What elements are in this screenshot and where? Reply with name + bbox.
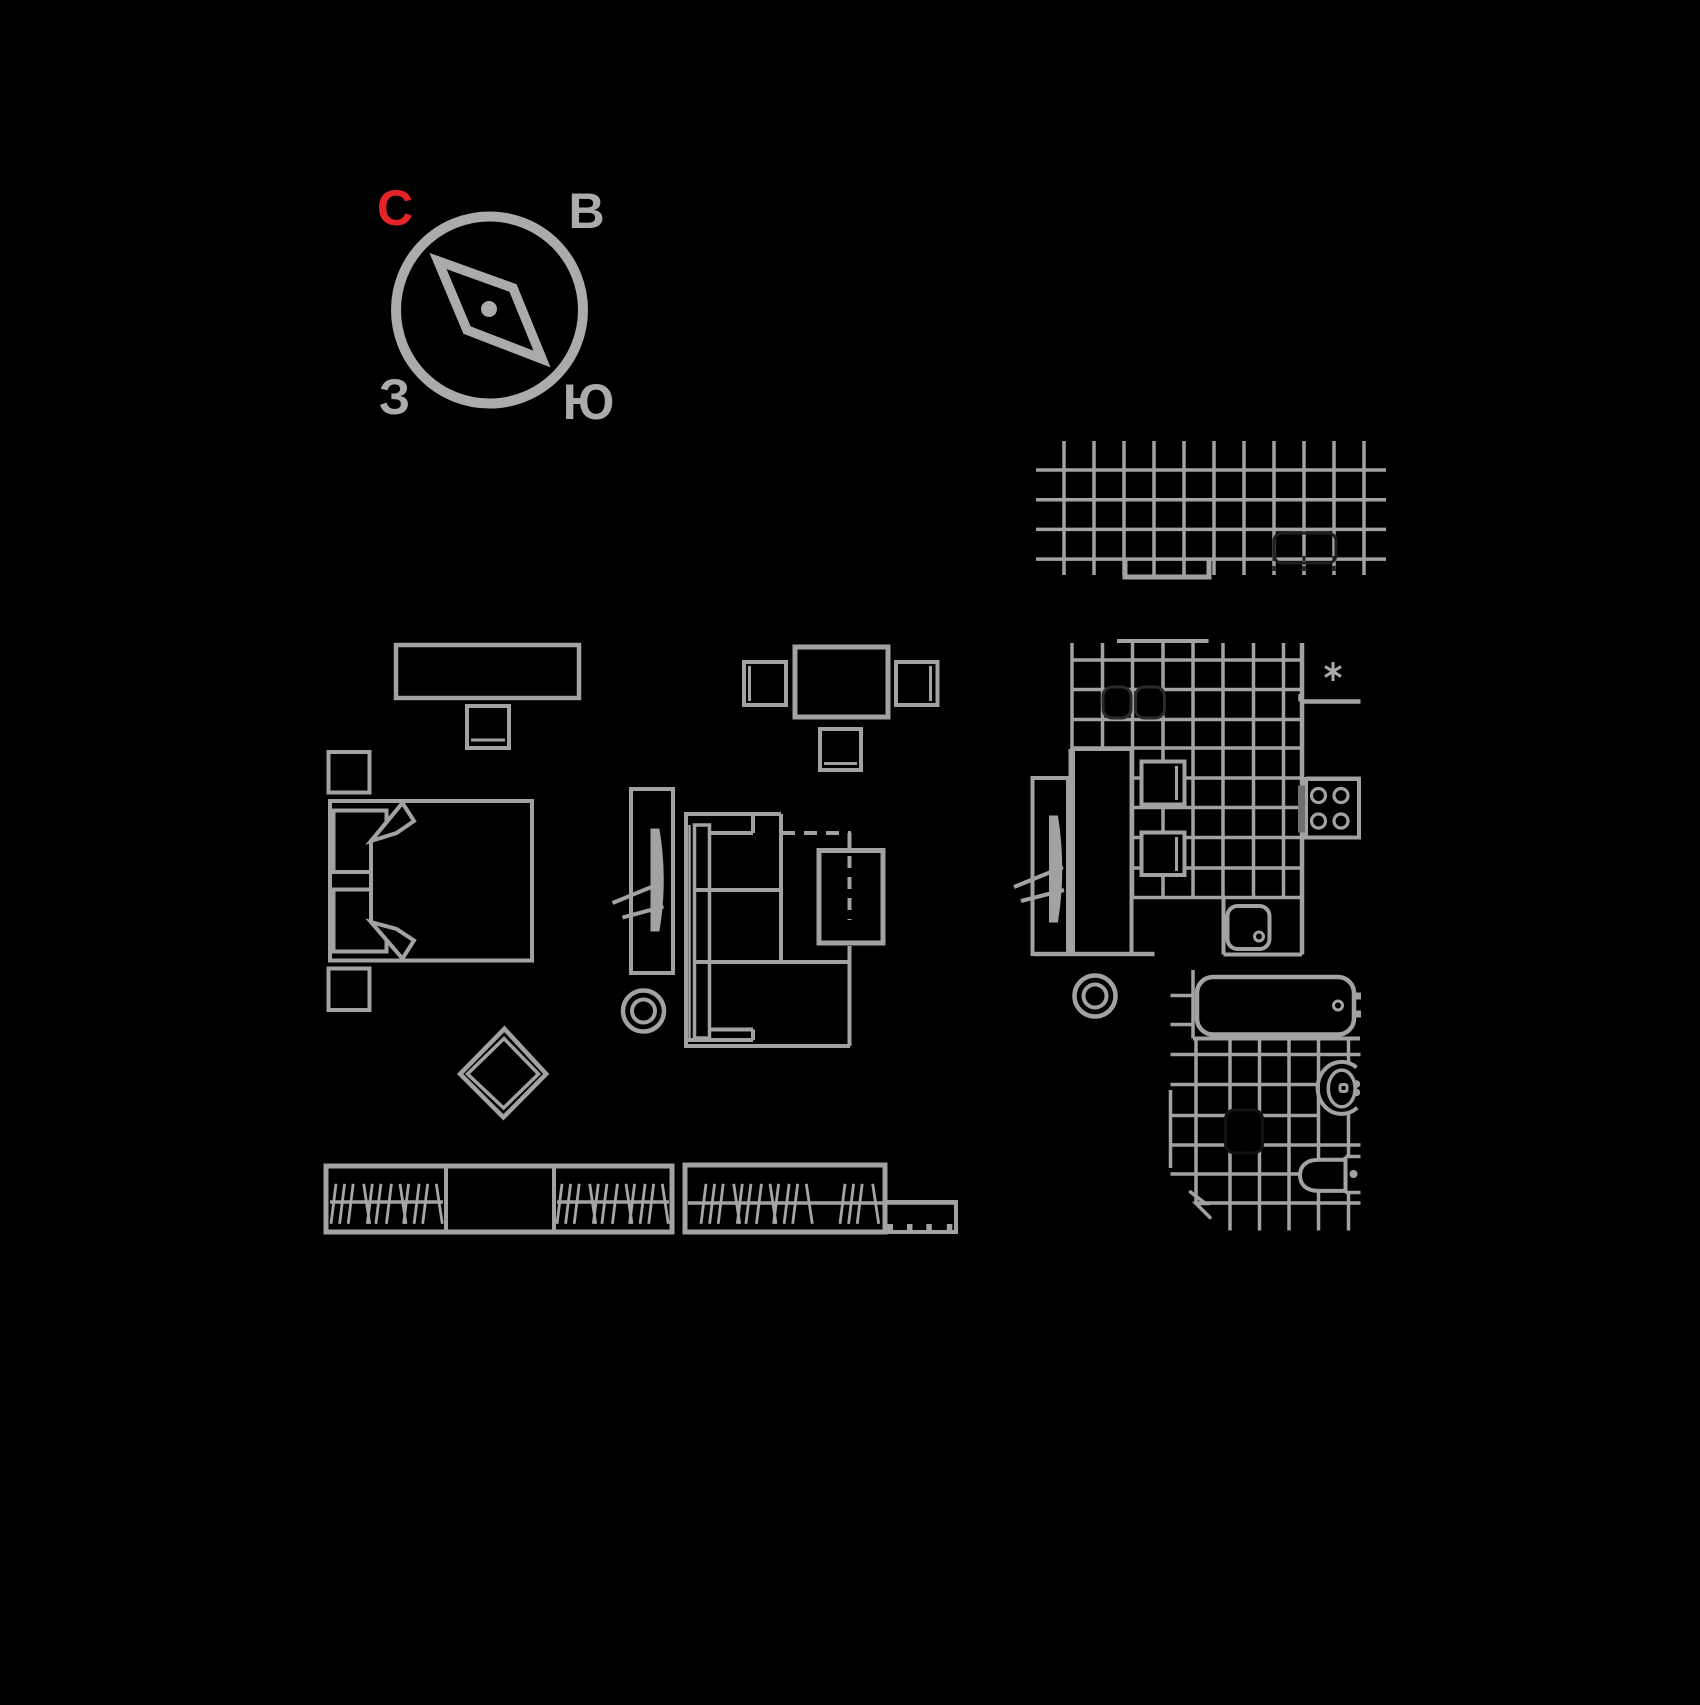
svg-text:С: С bbox=[377, 180, 413, 236]
svg-text:З: З bbox=[379, 369, 410, 425]
svg-text:Ю: Ю bbox=[563, 374, 615, 430]
svg-text:В: В bbox=[568, 183, 604, 239]
